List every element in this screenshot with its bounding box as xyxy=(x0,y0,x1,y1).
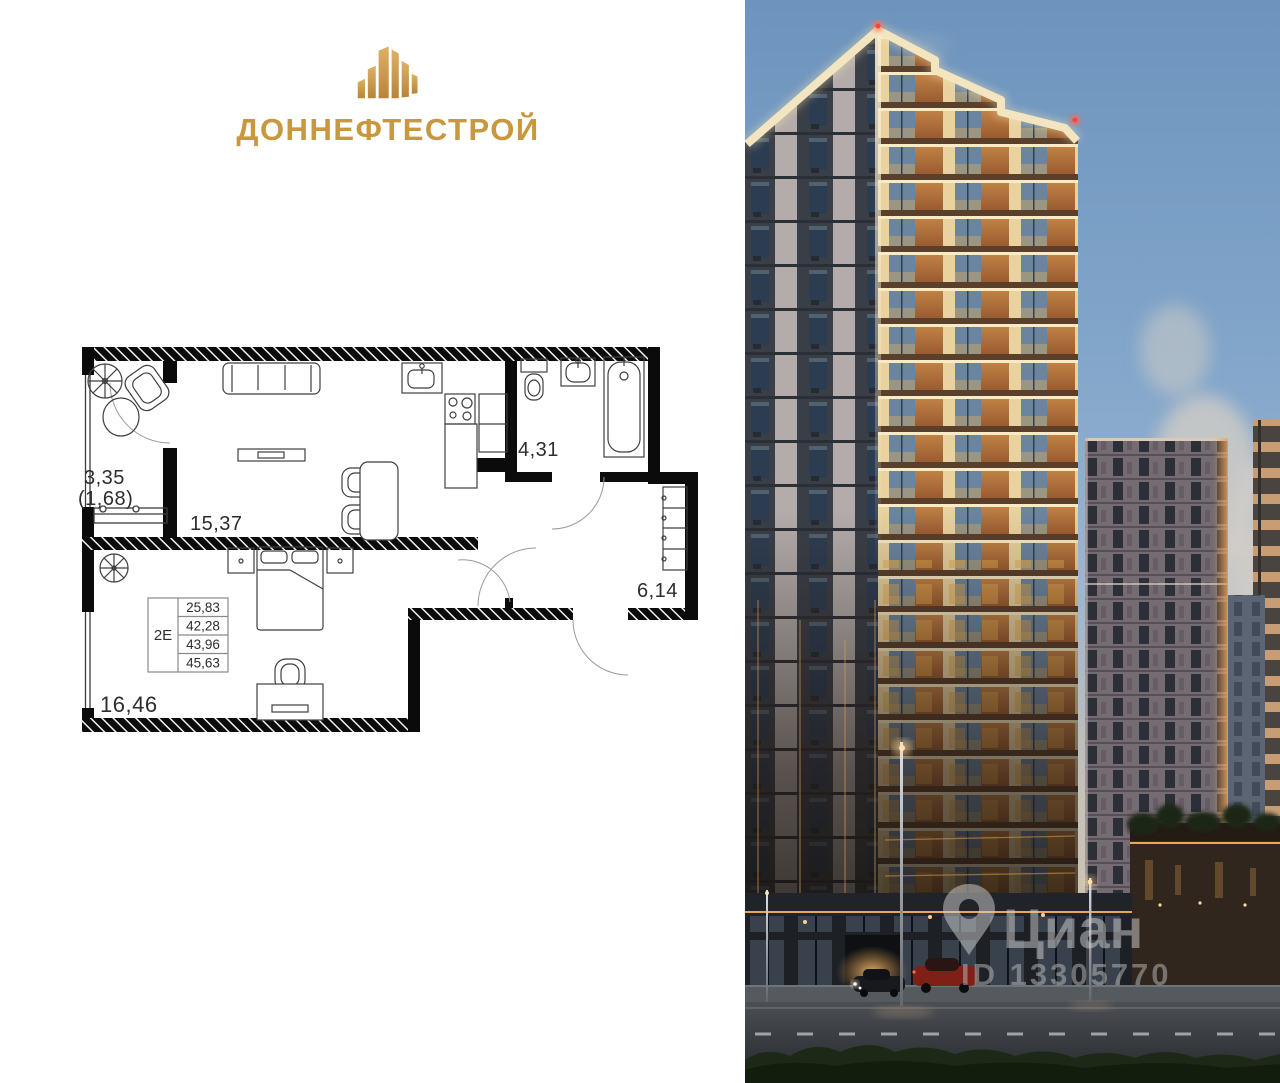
bed xyxy=(257,547,323,630)
floorplan-pane: ДОННЕФТЕСТРОЙ xyxy=(0,0,745,1083)
stove xyxy=(445,394,475,424)
tv-stand xyxy=(238,449,305,461)
area-value: 42,28 xyxy=(186,619,220,634)
bedroom-area-label: 16,46 xyxy=(100,692,158,717)
living-door-arc xyxy=(478,548,536,606)
compass-icon xyxy=(100,554,128,582)
building-render: Циан ID 13305770 xyxy=(745,0,1280,1083)
hallway-area-label: 6,14 xyxy=(637,580,678,602)
toilet xyxy=(521,359,547,400)
sofa xyxy=(223,363,320,394)
cian-watermark: Циан ID 13305770 xyxy=(943,884,1172,992)
balcony-area-label: 3,35 xyxy=(84,467,125,489)
apartment-area-table: 2Е 25,83 42,28 43,96 45,63 xyxy=(148,598,228,672)
wardrobe xyxy=(662,487,687,570)
living-room-area-label: 15,37 xyxy=(190,513,243,535)
dining-set xyxy=(342,462,398,540)
bathroom-door-arc xyxy=(552,477,604,529)
compass-icon xyxy=(88,364,122,398)
watermark-listing-id: ID 13305770 xyxy=(961,957,1172,992)
bathroom-sink xyxy=(561,358,595,386)
nightstand xyxy=(228,548,254,573)
nightstand xyxy=(327,548,353,573)
apartment-type-label: 2Е xyxy=(154,627,172,644)
fridge xyxy=(479,394,507,452)
area-value: 43,96 xyxy=(186,637,220,652)
main-tower xyxy=(745,20,1081,905)
dining-table xyxy=(360,462,398,540)
lit-corner-edge xyxy=(875,28,881,568)
bathtub xyxy=(604,357,644,457)
area-value: 45,63 xyxy=(186,656,220,671)
kitchen-sink xyxy=(402,363,442,393)
kitchen-counter xyxy=(445,424,477,488)
building-render-pane: Циан ID 13305770 xyxy=(745,0,1280,1083)
area-value: 25,83 xyxy=(186,600,220,615)
watermark-brand: Циан xyxy=(1003,897,1143,960)
floor-plan: 2Е 25,83 42,28 43,96 45,63 3,35 (1,68) 1… xyxy=(0,0,745,1083)
desk xyxy=(257,684,323,720)
balcony-reduced-area-label: (1,68) xyxy=(78,488,133,510)
bathroom-area-label: 4,31 xyxy=(518,439,559,461)
entrance-door-arc xyxy=(573,620,628,675)
